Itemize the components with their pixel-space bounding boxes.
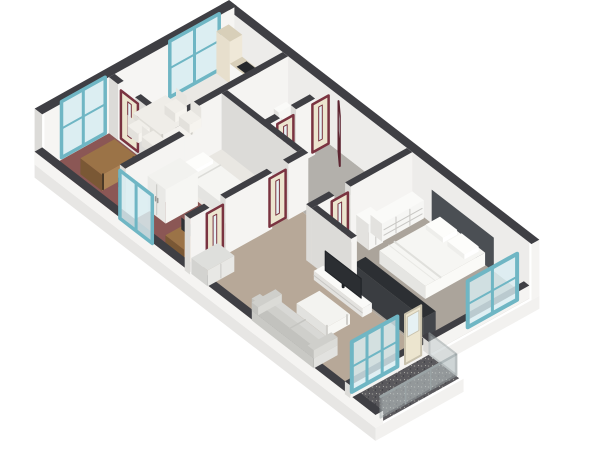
floorplan-3d-render <box>0 0 600 450</box>
wc-door-glass-slit <box>319 105 323 141</box>
bedroom2-door-glass-slit <box>276 179 280 215</box>
wall-office1-east-a-side <box>109 77 118 140</box>
floorplan-stage <box>0 0 600 450</box>
wall-living-north-a-side <box>185 215 190 275</box>
wall-master-north-a-side <box>306 204 311 264</box>
wall-living-north-c-front <box>288 153 308 220</box>
wall-ne-endcap <box>532 240 540 300</box>
